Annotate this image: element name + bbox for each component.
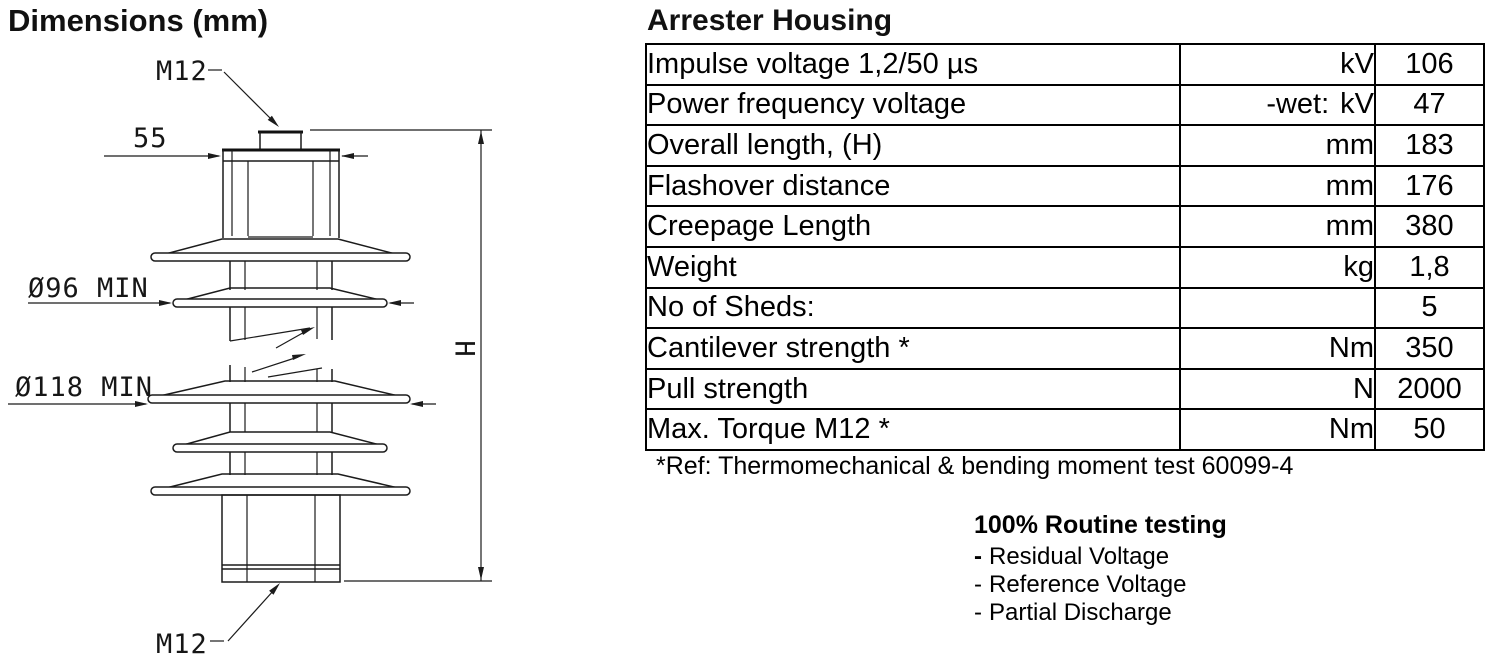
unit-value: mm [1326,129,1374,161]
list-dash: - [974,599,982,627]
spec-label: Impulse voltage 1,2/50 µs [646,44,1180,85]
table-row: Max. Torque M12 * Nm 50 [646,409,1484,450]
spec-value: 47 [1375,85,1484,126]
spec-label: Cantilever strength * [646,328,1180,369]
shed-4 [173,432,387,452]
table-row: Power frequency voltage -wet:kV 47 [646,85,1484,126]
column-segment [230,261,332,290]
list-item: -Residual Voltage [974,543,1227,571]
unit-value: Nm [1329,332,1374,364]
column-segment [230,403,332,432]
arrester-housing-title: Arrester Housing [647,4,892,38]
spec-label: No of Sheds: [646,288,1180,329]
table-row: Weight kg 1,8 [646,247,1484,288]
spec-label: Overall length, (H) [646,125,1180,166]
dim-arrow-icon [478,131,484,144]
label-width-55: 55 [133,123,168,154]
top-flange [222,150,340,161]
spec-label: Weight [646,247,1180,288]
spec-unit: Nm [1180,409,1375,450]
table-row: Flashover distance mm 176 [646,166,1484,207]
unit-value: Nm [1329,413,1374,445]
housing-body [223,150,339,238]
spec-label: Creepage Length [646,206,1180,247]
spec-unit: mm [1180,166,1375,207]
spec-value: 50 [1375,409,1484,450]
table-row: Cantilever strength * Nm 350 [646,328,1484,369]
dim-arrow-icon [478,567,484,580]
list-item-text: Partial Discharge [989,599,1172,626]
spec-unit: kV [1180,44,1375,85]
label-height-h: H [449,340,480,357]
label-diameter-96: Ø96 MIN [28,273,149,304]
spec-unit: kg [1180,247,1375,288]
spec-value: 176 [1375,166,1484,207]
table-row: Pull strength N 2000 [646,369,1484,410]
unit-value: N [1353,373,1374,405]
spec-unit: Nm [1180,328,1375,369]
table-row: Creepage Length mm 380 [646,206,1484,247]
dim-arrow-icon [208,153,221,159]
break-symbol [230,327,322,377]
unit-value: mm [1326,170,1374,202]
height-dimension-h: H [310,130,492,581]
unit-prefix: -wet: [1266,88,1329,120]
spec-label: Flashover distance [646,166,1180,207]
width-dimension-55: 55 [104,123,368,159]
unit-value: mm [1326,210,1374,242]
dim-arrow-icon [410,401,423,407]
spec-value: 106 [1375,44,1484,85]
routine-testing-heading: 100% Routine testing [974,511,1227,540]
spec-value: 183 [1375,125,1484,166]
spec-value: 2000 [1375,369,1484,410]
spec-label: Max. Torque M12 * [646,409,1180,450]
list-item-text: Residual Voltage [989,543,1169,570]
label-m12-bottom: M12 [156,629,208,660]
spec-value: 350 [1375,328,1484,369]
datasheet-page: Dimensions (mm) M12 55 [0,0,1489,665]
base-block [222,495,340,582]
label-m12-top: M12 [156,56,208,87]
column-segment [230,307,332,341]
column-segment [230,365,332,382]
table-row: Impulse voltage 1,2/50 µs kV 106 [646,44,1484,85]
unit-value: kg [1343,251,1374,283]
routine-testing-list: -Residual Voltage -Reference Voltage -Pa… [974,543,1227,627]
m12-bottom-callout: M12 [156,583,280,660]
table-row: No of Sheds: 5 [646,288,1484,329]
spec-unit: mm [1180,125,1375,166]
spec-unit [1180,288,1375,329]
list-item: -Reference Voltage [974,571,1227,599]
spec-value: 5 [1375,288,1484,329]
spec-unit: mm [1180,206,1375,247]
spec-value: 1,8 [1375,247,1484,288]
arrester-drawing: M12 55 [0,0,645,665]
table-row: Overall length, (H) mm 183 [646,125,1484,166]
break-arrow-icon [292,354,306,360]
list-item: -Partial Discharge [974,599,1227,627]
shed-3 [148,381,410,403]
dim-arrow-icon [341,153,354,159]
spec-table: Impulse voltage 1,2/50 µs kV 106 Power f… [645,43,1485,451]
label-diameter-118: Ø118 MIN [15,372,153,403]
routine-testing-block: 100% Routine testing -Residual Voltage -… [974,511,1227,627]
dim-arrow-icon [388,300,401,306]
spec-unit: N [1180,369,1375,410]
shed-1 [151,239,410,261]
unit-value: kV [1340,48,1374,80]
spec-label: Power frequency voltage [646,85,1180,126]
terminal-stud-top [258,132,303,150]
unit-value: kV [1340,88,1374,120]
list-item-text: Reference Voltage [989,571,1186,598]
list-dash: - [974,571,982,599]
shed-2 [173,288,387,307]
list-dash: - [974,543,982,571]
shed-5 [151,474,410,495]
column-segment [230,452,332,475]
spec-value: 380 [1375,206,1484,247]
table-footnote: *Ref: Thermomechanical & bending moment … [656,452,1293,481]
spec-label: Pull strength [646,369,1180,410]
dim-arrow-icon [159,300,172,306]
m12-top-callout: M12 [156,56,279,127]
spec-unit: -wet:kV [1180,85,1375,126]
